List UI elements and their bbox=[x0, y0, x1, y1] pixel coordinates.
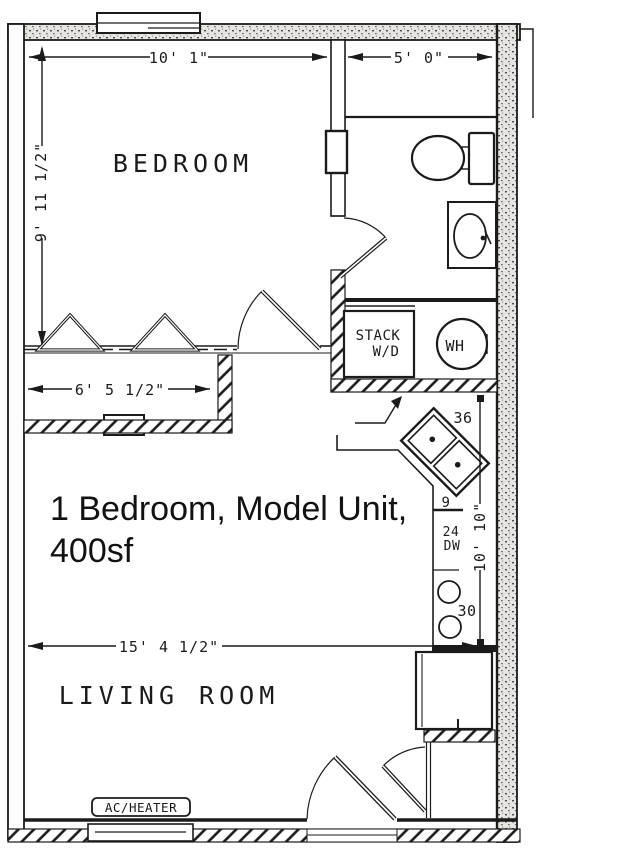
toilet-tank bbox=[469, 133, 494, 184]
bathroom-sink bbox=[454, 214, 486, 258]
dim-arrow bbox=[28, 642, 43, 650]
stack-wd-label-line2: W/D bbox=[373, 344, 400, 360]
dim-tick bbox=[477, 639, 484, 646]
laundry-south-wall bbox=[331, 379, 497, 392]
corner-double-sink bbox=[401, 408, 489, 496]
bedroom-door-swing-arc bbox=[238, 291, 262, 349]
left-wall bbox=[8, 24, 24, 840]
dim-arrow bbox=[38, 46, 46, 61]
dim-arrow bbox=[312, 53, 327, 61]
sink-faucet bbox=[481, 236, 486, 241]
entry-closet-door-swing-arc bbox=[383, 747, 425, 766]
bed-bath-divider-wall bbox=[331, 40, 345, 216]
dim-tick bbox=[477, 395, 484, 402]
kitchen-counter-edge bbox=[337, 435, 433, 645]
closet-south-wall bbox=[24, 420, 232, 433]
dim-bathroom-width: 5' 0" bbox=[394, 49, 444, 67]
water-heater-label: WH bbox=[445, 337, 464, 355]
living-room-label: LIVING ROOM bbox=[59, 681, 280, 710]
refrigerator bbox=[416, 652, 492, 729]
wall-cabinet bbox=[326, 131, 347, 173]
dim-bedroom-depth: 9' 11 1/2" bbox=[32, 142, 50, 242]
caption-line1: 1 Bedroom, Model Unit, bbox=[50, 490, 407, 528]
range-burner-top bbox=[438, 581, 460, 603]
floor-plan-drawing: 10' 1" 5' 0" 9' 11 1/2" 6' 5 1/2" 15' 4 … bbox=[0, 0, 622, 854]
bathroom bbox=[345, 117, 497, 268]
caption-line2: 400sf bbox=[50, 532, 134, 570]
divider-wall-lower bbox=[331, 270, 345, 392]
dim-living-room-width: 15' 4 1/2" bbox=[119, 638, 219, 656]
ac-heater-label: AC/HEATER bbox=[105, 800, 177, 815]
dim-arrow bbox=[348, 53, 363, 61]
bifold-door-right bbox=[133, 315, 197, 350]
sink-width-label: 36 bbox=[453, 409, 472, 427]
dim-kitchen-wall: 10' 10" bbox=[471, 502, 489, 572]
bedroom-door-leaf-inner bbox=[262, 291, 320, 349]
bedroom-label: BEDROOM bbox=[113, 149, 253, 178]
laundry bbox=[344, 311, 487, 377]
entry-closet-door-leaf-inner bbox=[383, 766, 425, 811]
labels: BEDROOM LIVING ROOM STACK W/D WH 36 9 24… bbox=[59, 149, 477, 816]
stack-wd-label-line1: STACK bbox=[356, 328, 401, 344]
entry-closet-north-wall bbox=[424, 730, 495, 742]
floor-plan: 10' 1" 5' 0" 9' 11 1/2" 6' 5 1/2" 15' 4 … bbox=[0, 0, 622, 854]
dim-arrow bbox=[195, 385, 210, 393]
dishwasher-width-label: 24 bbox=[443, 525, 460, 540]
toilet-bowl bbox=[412, 136, 464, 180]
caption: 1 Bedroom, Model Unit, 400sf bbox=[50, 490, 407, 570]
entry-door-swing-arc bbox=[307, 757, 335, 819]
filler-cabinet-label: 9 bbox=[442, 495, 451, 511]
dim-bedroom-width: 10' 1" bbox=[149, 49, 209, 67]
leader-arrowhead bbox=[391, 396, 402, 409]
dim-arrow bbox=[28, 385, 43, 393]
range-width-label: 30 bbox=[457, 602, 476, 620]
adjacent-unit-line bbox=[520, 29, 533, 118]
bathroom-door-leaf-inner bbox=[340, 238, 386, 277]
dim-closet-width: 6' 5 1/2" bbox=[75, 381, 165, 399]
bathroom-door-swing-arc bbox=[344, 218, 386, 238]
right-wall bbox=[497, 24, 517, 842]
top-wall bbox=[8, 24, 520, 40]
dishwasher-label: DW bbox=[444, 539, 461, 554]
leader-line bbox=[355, 403, 397, 423]
dim-arrow bbox=[477, 53, 492, 61]
bottom-wall-hatch bbox=[8, 829, 520, 842]
bifold-door-left bbox=[38, 315, 102, 350]
